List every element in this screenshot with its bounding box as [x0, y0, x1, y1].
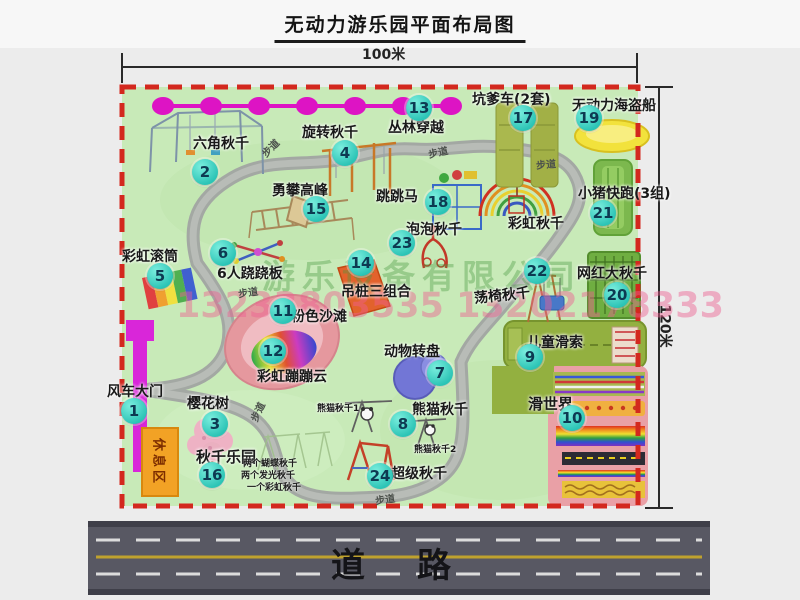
label-panda-swing-1: 熊猫秋千1	[317, 401, 359, 414]
attraction-marker-12: 12	[260, 338, 286, 364]
label-big-swing: 网红大秋千	[577, 263, 647, 283]
label-bubble-swing: 泡泡秋千	[406, 219, 462, 239]
attraction-marker-24: 24	[367, 463, 393, 489]
label-hexagon-swing: 六角秋千	[193, 133, 249, 153]
rest-area-label: 休息区	[151, 438, 170, 486]
zipline-ball	[296, 97, 318, 115]
attraction-marker-16: 16	[199, 462, 225, 488]
attraction-marker-7: 7	[427, 360, 453, 386]
attraction-marker-9: 9	[517, 344, 543, 370]
attraction-marker-23: 23	[389, 230, 415, 256]
label-rainbow-roller: 彩虹滚筒	[122, 246, 178, 266]
label-panda-swing-2: 熊猫秋千2	[414, 442, 456, 455]
attraction-marker-10: 10	[559, 405, 585, 431]
rest-area-box: 休息区	[141, 427, 179, 497]
label-rainbow-cloud: 彩虹蹦蹦云	[257, 366, 327, 386]
label-hanging-pile: 吊桩三组合	[341, 281, 411, 301]
attraction-marker-1: 1	[121, 398, 147, 424]
attraction-marker-3: 3	[202, 411, 228, 437]
attraction-marker-2: 2	[192, 159, 218, 185]
zipline-ball	[248, 97, 270, 115]
attraction-marker-14: 14	[348, 250, 374, 276]
attraction-marker-15: 15	[303, 196, 329, 222]
attraction-marker-22: 22	[524, 258, 550, 284]
label-panda-swing: 熊猫秋千	[412, 399, 468, 419]
dimension-width-label: 100米	[362, 44, 405, 64]
zipline-ball	[440, 97, 462, 115]
zipline-ball	[344, 97, 366, 115]
attraction-marker-18: 18	[425, 189, 451, 215]
label-kengdie-car: 坑爹车(2套)	[472, 89, 551, 109]
label-pink-beach: 粉色沙滩	[291, 306, 347, 326]
attraction-marker-13: 13	[406, 95, 432, 121]
label-super-swing: 超级秋千	[391, 463, 447, 483]
label-jumping-horse: 跳跳马	[376, 186, 418, 206]
label-animal-carousel: 动物转盘	[384, 341, 440, 361]
label-cherry-tree: 樱花树	[187, 393, 229, 413]
label-piggy-run: 小猪快跑(3组)	[578, 183, 671, 203]
walkway-label: 步道	[374, 490, 396, 508]
attraction-marker-4: 4	[332, 140, 358, 166]
swing-park-note-3: 一个彩虹秋千	[247, 480, 301, 493]
attraction-marker-21: 21	[590, 200, 616, 226]
attraction-marker-20: 20	[604, 282, 630, 308]
label-rotary-swing: 旋转秋千	[302, 122, 358, 142]
park-plan: 无动力游乐园平面布局图 100米 120米 游乐设备有限公司 132338035…	[0, 0, 800, 600]
zipline-ball	[200, 97, 222, 115]
attraction-marker-8: 8	[390, 411, 416, 437]
walkway-label: 步道	[237, 283, 259, 301]
attraction-marker-11: 11	[270, 298, 296, 324]
zipline-ball	[152, 97, 174, 115]
road-label: 道路	[331, 538, 503, 587]
attraction-marker-17: 17	[510, 105, 536, 131]
attraction-marker-19: 19	[576, 105, 602, 131]
label-rainbow-swing: 彩虹秋千	[508, 213, 564, 233]
walkway-label: 步道	[535, 155, 556, 172]
attraction-marker-5: 5	[147, 263, 173, 289]
attraction-marker-6: 6	[210, 240, 236, 266]
label-seesaw: 6人跷跷板	[217, 263, 283, 283]
page-title: 无动力游乐园平面布局图	[274, 10, 525, 43]
